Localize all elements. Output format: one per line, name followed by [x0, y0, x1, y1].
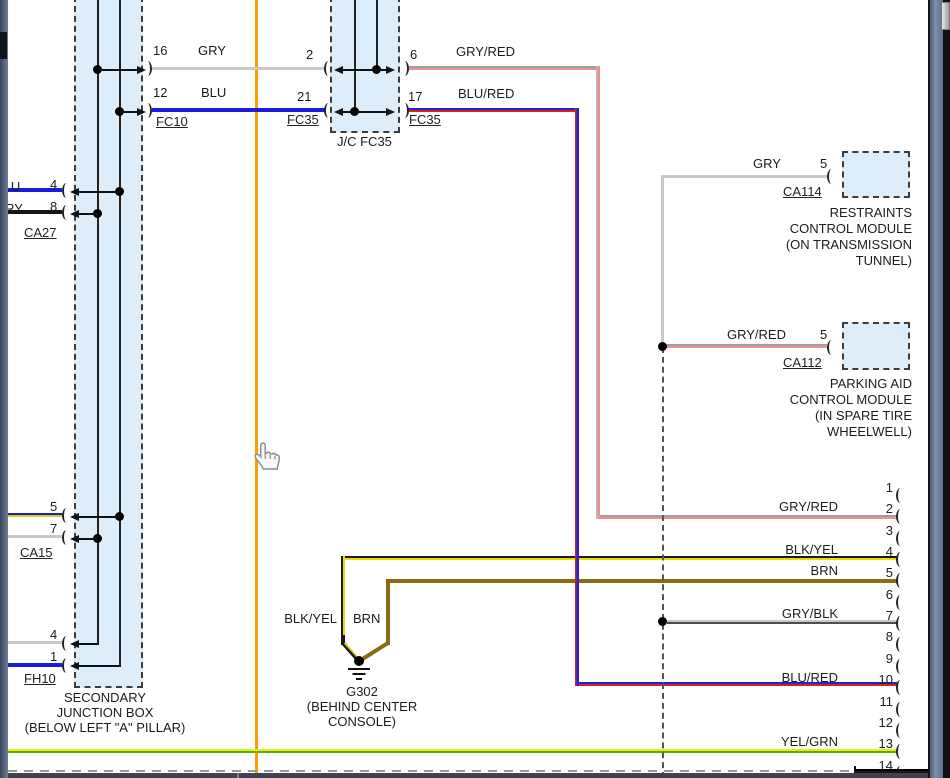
connector-arc: [896, 637, 905, 652]
left-panel-handle[interactable]: [0, 32, 7, 59]
wire-label: BLU/RED: [458, 87, 514, 101]
connector-arc: [62, 508, 71, 523]
connector-arc: [896, 488, 905, 503]
arrow-shaft: [79, 665, 121, 667]
arrow-shaft: [79, 538, 98, 540]
wire-label: BRN: [728, 564, 838, 578]
wire-gry-ca114[interactable]: [661, 175, 827, 178]
wire-blkyel-vertical[interactable]: [341, 556, 345, 645]
pin-number: 12: [153, 86, 167, 100]
connector-arc: [896, 573, 905, 588]
arrow-shaft: [120, 111, 138, 113]
connector-id-ca114[interactable]: CA114: [783, 185, 822, 199]
connector-arc: [62, 636, 71, 651]
wire-yelgrn-pin13[interactable]: [8, 749, 897, 753]
caption-line: CONTROL MODULE: [712, 221, 912, 237]
arrow-left-icon: [334, 108, 343, 116]
page-boundary-dashed-line: [8, 770, 853, 772]
connector-arc: [896, 595, 905, 610]
connector-arc: [896, 680, 905, 695]
connector-arc: [827, 340, 836, 355]
wire-gry-vertical[interactable]: [661, 175, 664, 347]
arrow-left-icon: [70, 640, 79, 648]
restraints-module-box: [842, 151, 910, 198]
pin-number: 8: [863, 630, 893, 644]
arrow-shaft: [98, 69, 138, 71]
wire-gryred-ca112[interactable]: [666, 344, 827, 348]
connector-id-ca112[interactable]: CA112: [783, 356, 822, 370]
connector-arc: [62, 530, 71, 545]
connector-arc: [827, 169, 836, 184]
hand-cursor-icon: [254, 441, 280, 477]
pin-number: 5: [863, 566, 893, 580]
wire-label: BLK/YEL: [257, 612, 337, 626]
pin-number: 9: [863, 652, 893, 666]
wire-label: YEL/GRN: [728, 735, 838, 749]
junction-dot: [658, 342, 667, 351]
wire-label: BLK/YEL: [728, 543, 838, 557]
arrow-shaft: [79, 643, 99, 645]
caption-line: (ON TRANSMISSION: [712, 237, 912, 253]
pin-number: 8: [50, 200, 57, 214]
connector-arc: [896, 616, 905, 631]
caption-line: WHEELWELL): [712, 424, 912, 440]
connector-arc: [896, 531, 905, 546]
pin-number: 4: [50, 628, 57, 642]
caption-line: CONSOLE): [300, 714, 424, 729]
wire-label: BLU/RED: [728, 671, 838, 685]
connector-arc: [400, 103, 409, 118]
connector-id-fc35-right[interactable]: FC35: [409, 113, 441, 127]
connector-arc: [143, 61, 152, 76]
pin-number: 4: [863, 545, 893, 559]
bus-line: [354, 0, 356, 112]
arrow-left-icon: [334, 66, 343, 74]
vertical-scrollbar-thumb[interactable]: [941, 2, 950, 30]
dashed-continuation-line: [662, 347, 664, 778]
wire-label: GRY: [198, 44, 226, 58]
caption-line: PARKING AID: [712, 376, 912, 392]
ground-symbol: [335, 635, 395, 690]
horizontal-scrollbar[interactable]: [8, 773, 929, 778]
connector-arc: [896, 552, 905, 567]
connector-arc: [896, 702, 905, 717]
pin-number: 7: [863, 609, 893, 623]
arrow-right-icon: [386, 108, 395, 116]
connector-id-ca15[interactable]: CA15: [20, 546, 53, 560]
wiring-diagram-viewer: 16 GRY 2 6 GRY/RED 12 BLU 21 17 BLU/RED …: [0, 0, 950, 778]
pin-number: 7: [50, 522, 57, 536]
arrow-shaft: [79, 191, 120, 193]
wire-label: BRN: [353, 612, 380, 626]
pin-number: 6: [863, 588, 893, 602]
wire-label: GRY/RED: [727, 328, 786, 342]
connector-arc: [324, 61, 333, 76]
pin-number: 21: [297, 90, 311, 104]
secondary-junction-box: [74, 0, 143, 688]
bus-line: [376, 0, 378, 70]
pin-number: 2: [863, 502, 893, 516]
connector-arc: [62, 183, 71, 198]
parking-aid-module-box: [842, 322, 910, 370]
pin-number: 5: [820, 157, 827, 171]
connector-id-ca27[interactable]: CA27: [24, 226, 57, 240]
wire-blured-vertical[interactable]: [575, 108, 579, 686]
wire-gry-fc10-fc35[interactable]: [152, 67, 326, 70]
pin-number: 6: [410, 48, 417, 62]
arrow-left-icon: [70, 188, 79, 196]
connector-arc: [896, 723, 905, 738]
wire-gryred-top[interactable]: [408, 66, 598, 70]
arrow-shaft: [340, 111, 388, 113]
scrollbar-gutter[interactable]: [930, 0, 943, 778]
connector-arc: [400, 61, 409, 76]
trace-highlight-line[interactable]: [255, 0, 258, 778]
connector-arc: [62, 205, 71, 220]
junction-box-caption: SECONDARY JUNCTION BOX (BELOW LEFT "A" P…: [10, 690, 200, 735]
pin-number: 4: [50, 178, 57, 192]
arrow-left-icon: [70, 662, 79, 670]
arrow-right-icon: [386, 66, 395, 74]
caption-line: CONTROL MODULE: [712, 392, 912, 408]
connector-id-fh10[interactable]: FH10: [24, 672, 56, 686]
hscroll-thumb-edge[interactable]: [237, 773, 239, 778]
arrow-left-icon: [70, 535, 79, 543]
pin-number: 2: [306, 48, 313, 62]
caption-line: (IN SPARE TIRE: [712, 408, 912, 424]
wire-label: GRY/RED: [728, 500, 838, 514]
pin-number: 11: [863, 695, 893, 709]
arrow-left-icon: [70, 513, 79, 521]
caption-line: JUNCTION BOX: [10, 705, 200, 720]
restraints-module-caption: RESTRAINTS CONTROL MODULE (ON TRANSMISSI…: [712, 205, 912, 269]
jc-fc35-label: J/C FC35: [337, 135, 392, 149]
arrow-shaft: [79, 516, 120, 518]
connector-arc: [324, 103, 333, 118]
pin-number: 5: [50, 500, 57, 514]
connector-arc: [896, 744, 905, 759]
caption-line: RESTRAINTS: [712, 205, 912, 221]
wire-label: GRY/BLK: [728, 607, 838, 621]
caption-line: (BEHIND CENTER: [300, 699, 424, 714]
pin-number: 5: [820, 328, 827, 342]
caption-line: SECONDARY: [10, 690, 200, 705]
caption-line: (BELOW LEFT "A" PILLAR): [10, 720, 200, 735]
wire-label: GRY: [753, 157, 781, 171]
ground-id: G302: [300, 684, 424, 699]
pin-number: 16: [153, 44, 167, 58]
pin-number: 10: [863, 673, 893, 687]
left-panel-edge: [0, 0, 8, 778]
wire-label: BLU: [201, 86, 226, 100]
arrow-shaft: [79, 213, 98, 215]
connector-id-fc35-left[interactable]: FC35: [287, 113, 319, 127]
bus-line: [119, 0, 121, 667]
connector-arc: [62, 658, 71, 673]
connector-arc: [896, 509, 905, 524]
arrow-shaft: [340, 69, 388, 71]
caption-line: TUNNEL): [712, 253, 912, 269]
pin-number: 17: [408, 90, 422, 104]
pin-number: 12: [863, 716, 893, 730]
wire-gryred-vertical[interactable]: [596, 66, 600, 519]
vertical-scrollbar-track[interactable]: [943, 0, 950, 778]
pin-number: 1: [863, 481, 893, 495]
arrow-left-icon: [70, 210, 79, 218]
pin-number: 13: [863, 737, 893, 751]
parking-aid-module-caption: PARKING AID CONTROL MODULE (IN SPARE TIR…: [712, 376, 912, 440]
pin-number: 3: [863, 524, 893, 538]
wire-gryred-pin2[interactable]: [598, 515, 897, 519]
connector-arc: [143, 103, 152, 118]
connector-id-fc10[interactable]: FC10: [156, 115, 188, 129]
ground-caption: G302 (BEHIND CENTER CONSOLE): [300, 684, 424, 729]
bus-line: [97, 0, 99, 645]
wire-label: GRY/RED: [456, 45, 515, 59]
pin-number: 1: [50, 650, 57, 664]
junction-dot: [658, 617, 667, 626]
wire-brn-pin5[interactable]: [386, 579, 897, 583]
connector-arc: [896, 659, 905, 674]
